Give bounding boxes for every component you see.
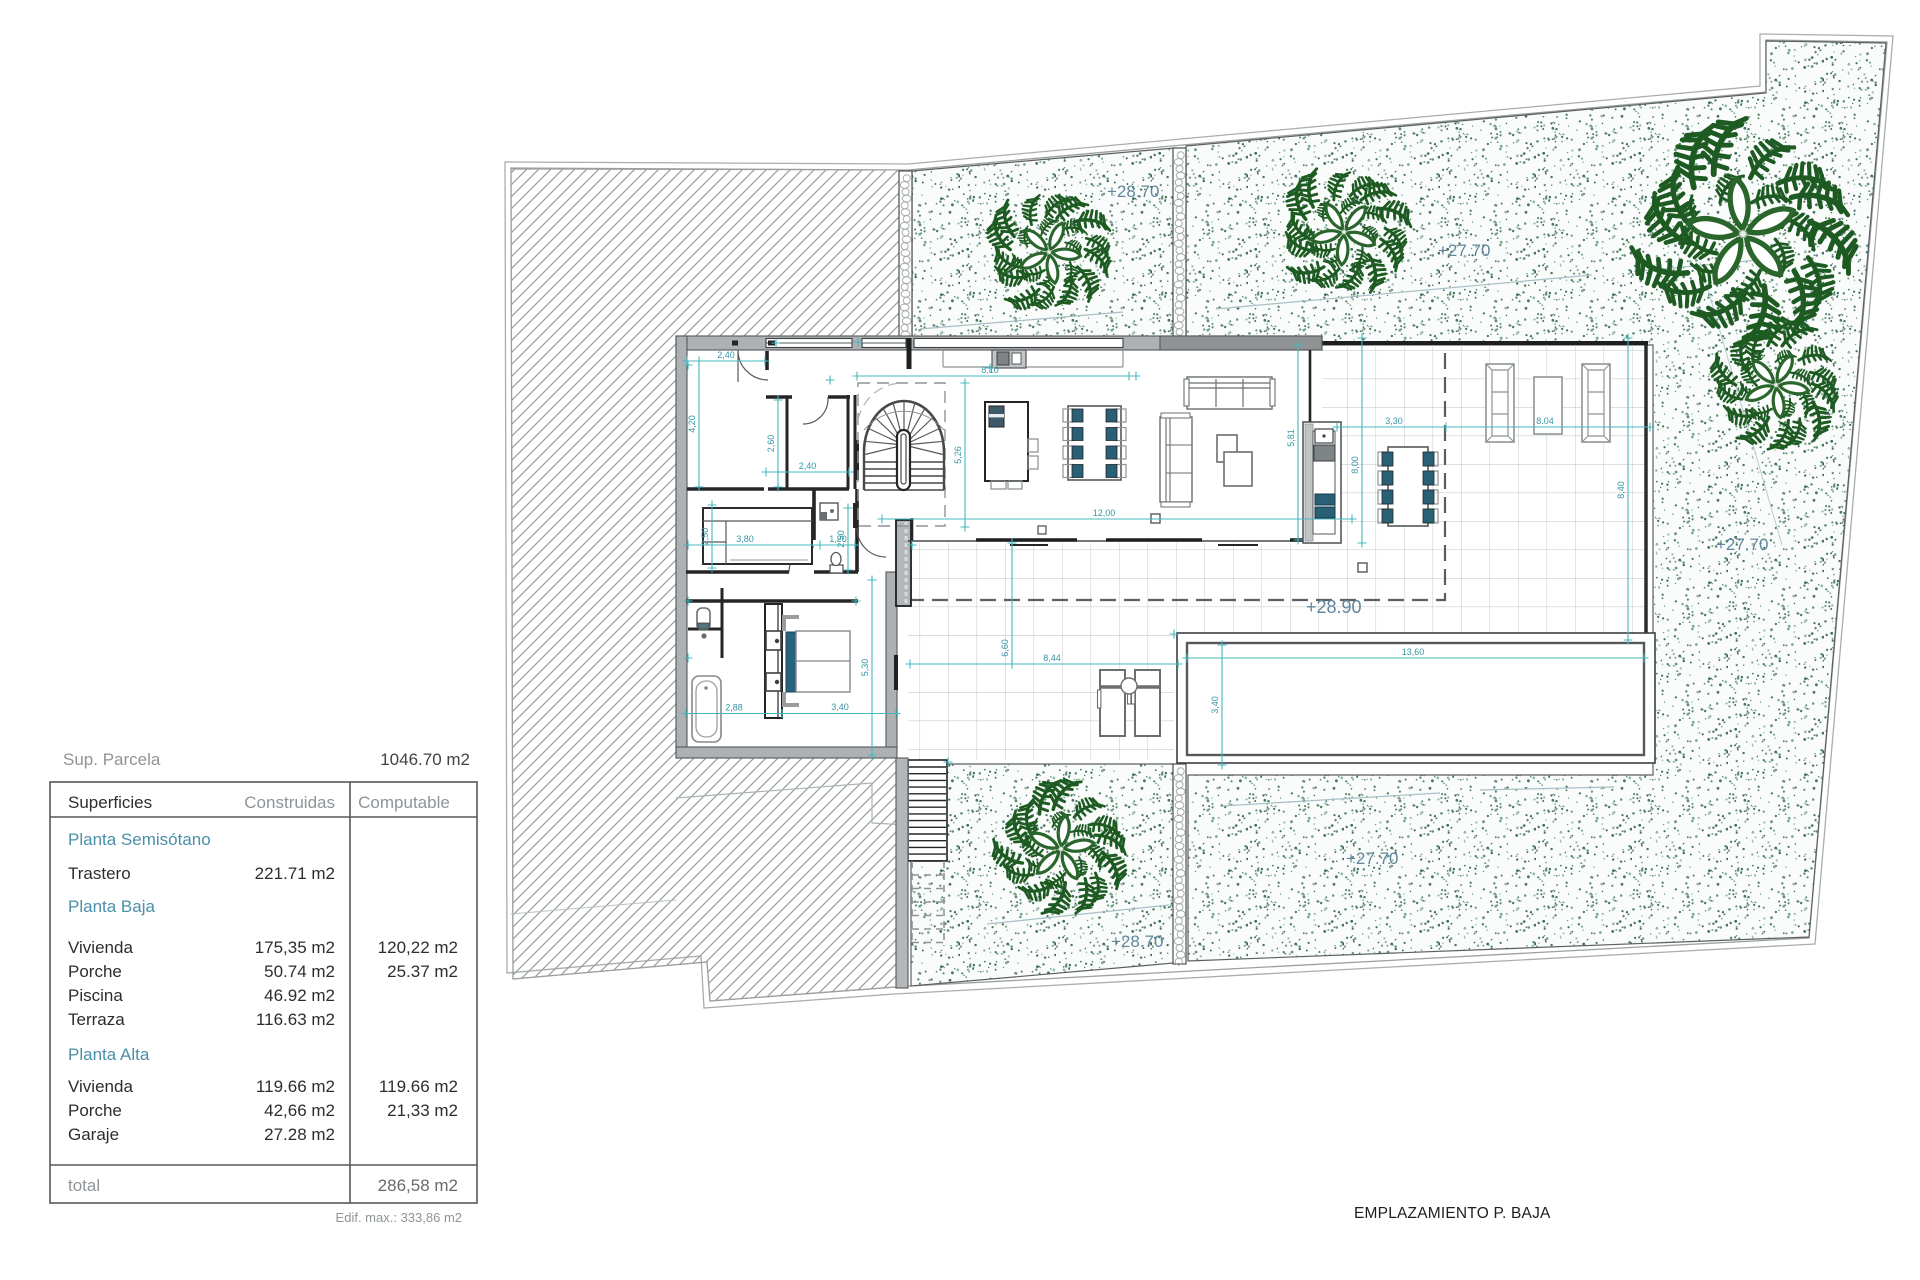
svg-text:+28.90: +28.90 xyxy=(1306,597,1362,617)
svg-text:+28.70: +28.70 xyxy=(1107,182,1159,201)
svg-text:221.71 m2: 221.71 m2 xyxy=(255,864,335,883)
svg-text:+28.70: +28.70 xyxy=(1111,932,1163,951)
svg-text:50.74 m2: 50.74 m2 xyxy=(264,962,335,981)
svg-text:2,40: 2,40 xyxy=(799,461,817,471)
svg-text:total: total xyxy=(68,1176,100,1195)
svg-text:Edif. max.: 333,86 m2: Edif. max.: 333,86 m2 xyxy=(336,1210,462,1225)
svg-text:4,20: 4,20 xyxy=(687,415,697,433)
svg-text:Garaje: Garaje xyxy=(68,1125,119,1144)
svg-text:120,22 m2: 120,22 m2 xyxy=(378,938,458,957)
svg-text:1,20: 1,20 xyxy=(829,534,847,544)
svg-text:8,00: 8,00 xyxy=(1350,456,1360,474)
svg-text:3,80: 3,80 xyxy=(736,534,754,544)
svg-text:Planta Baja: Planta Baja xyxy=(68,897,155,916)
svg-text:119.66 m2: 119.66 m2 xyxy=(379,1077,458,1096)
svg-text:Construidas: Construidas xyxy=(244,793,335,812)
svg-text:12,00: 12,00 xyxy=(1093,508,1116,518)
svg-text:116.63 m2: 116.63 m2 xyxy=(256,1010,335,1029)
svg-text:2,40: 2,40 xyxy=(717,350,735,360)
svg-text:2,50: 2,50 xyxy=(700,528,710,546)
svg-text:119.66 m2: 119.66 m2 xyxy=(256,1077,335,1096)
svg-text:Trastero: Trastero xyxy=(68,864,131,883)
svg-text:6,60: 6,60 xyxy=(1000,639,1010,657)
svg-text:Vivienda: Vivienda xyxy=(68,1077,133,1096)
svg-text:2,88: 2,88 xyxy=(725,703,743,713)
svg-text:8.04: 8.04 xyxy=(1536,416,1554,426)
svg-text:21,33 m2: 21,33 m2 xyxy=(387,1101,458,1120)
svg-text:8,44: 8,44 xyxy=(1043,653,1061,663)
svg-text:3,40: 3,40 xyxy=(1210,696,1220,714)
svg-text:Piscina: Piscina xyxy=(68,986,123,1005)
svg-text:Terraza: Terraza xyxy=(68,1010,125,1029)
svg-text:Superficies: Superficies xyxy=(68,793,152,812)
svg-text:1046.70 m2: 1046.70 m2 xyxy=(380,750,470,769)
svg-text:46.92 m2: 46.92 m2 xyxy=(264,986,335,1005)
svg-text:25.37 m2: 25.37 m2 xyxy=(387,962,458,981)
svg-text:5,26: 5,26 xyxy=(953,446,963,464)
svg-text:Planta Alta: Planta Alta xyxy=(68,1045,150,1064)
svg-text:Porche: Porche xyxy=(68,1101,122,1120)
svg-text:42,66 m2: 42,66 m2 xyxy=(264,1101,335,1120)
svg-text:3,30: 3,30 xyxy=(1385,416,1403,426)
svg-text:+27.70: +27.70 xyxy=(1716,535,1768,554)
svg-text:13,60: 13,60 xyxy=(1402,647,1425,657)
svg-text:5,30: 5,30 xyxy=(860,659,870,677)
svg-text:EMPLAZAMIENTO P. BAJA: EMPLAZAMIENTO P. BAJA xyxy=(1354,1205,1551,1222)
svg-text:27.28 m2: 27.28 m2 xyxy=(264,1125,335,1144)
svg-text:+27.70: +27.70 xyxy=(1438,241,1490,260)
svg-text:286,58 m2: 286,58 m2 xyxy=(378,1176,458,1195)
svg-text:+27.70: +27.70 xyxy=(1346,849,1398,868)
svg-text:5,81: 5,81 xyxy=(1286,429,1296,447)
svg-text:Computable: Computable xyxy=(358,793,450,812)
svg-text:Porche: Porche xyxy=(68,962,122,981)
svg-text:Planta Semisótano: Planta Semisótano xyxy=(68,830,211,849)
svg-text:175,35 m2: 175,35 m2 xyxy=(255,938,335,957)
svg-text:3,40: 3,40 xyxy=(831,702,849,712)
svg-text:8,40: 8,40 xyxy=(1616,481,1626,499)
svg-text:2,60: 2,60 xyxy=(766,435,776,453)
svg-text:Vivienda: Vivienda xyxy=(68,938,133,957)
svg-text:Sup. Parcela: Sup. Parcela xyxy=(63,750,161,769)
